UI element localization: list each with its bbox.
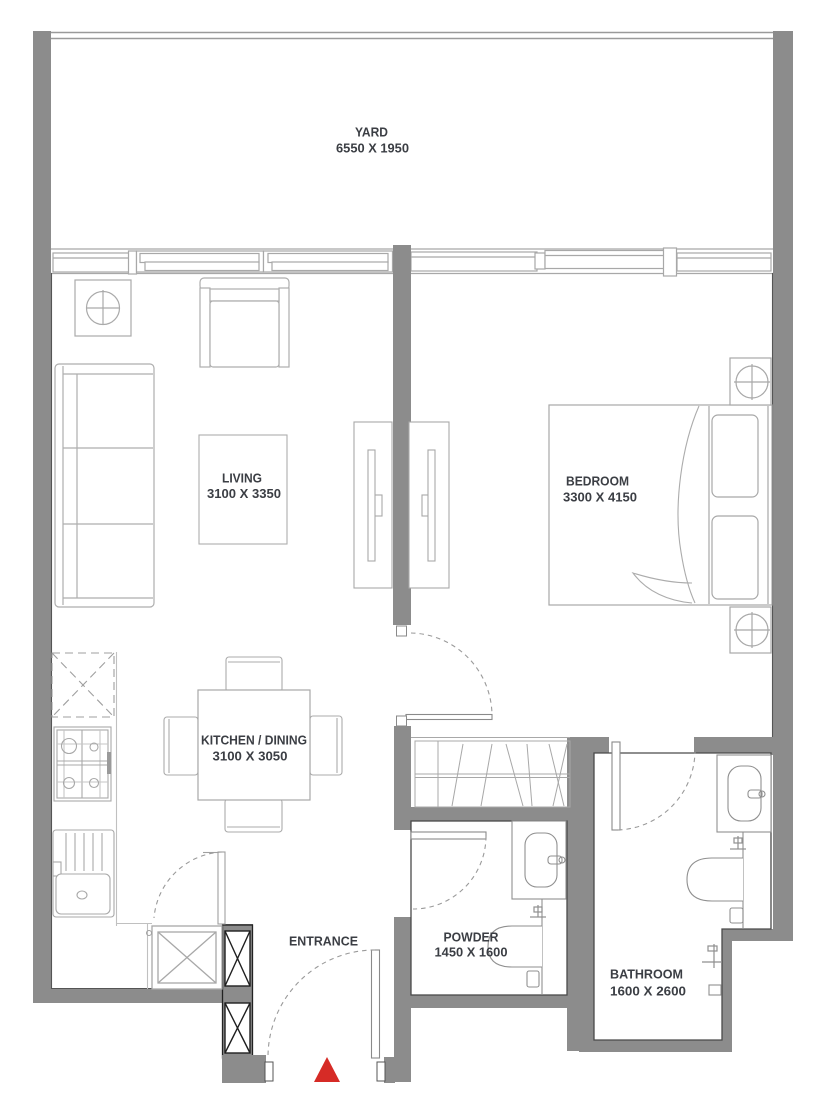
svg-text:BATHROOM: BATHROOM [610,967,683,982]
svg-text:LIVING: LIVING [222,471,262,486]
svg-text:3100 X 3350: 3100 X 3350 [207,486,281,501]
svg-text:1600 X 2600: 1600 X 2600 [610,984,686,999]
svg-text:3100 X 3050: 3100 X 3050 [213,749,288,764]
svg-text:3300 X 4150: 3300 X 4150 [563,490,637,505]
svg-text:BEDROOM: BEDROOM [566,474,629,489]
svg-text:6550 X 1950: 6550 X 1950 [336,141,409,156]
svg-text:YARD: YARD [355,125,388,140]
svg-text:KITCHEN / DINING: KITCHEN / DINING [201,733,307,748]
svg-text:ENTRANCE: ENTRANCE [289,934,358,949]
svg-text:1450 X 1600: 1450 X 1600 [435,945,508,960]
svg-text:POWDER: POWDER [444,930,500,945]
